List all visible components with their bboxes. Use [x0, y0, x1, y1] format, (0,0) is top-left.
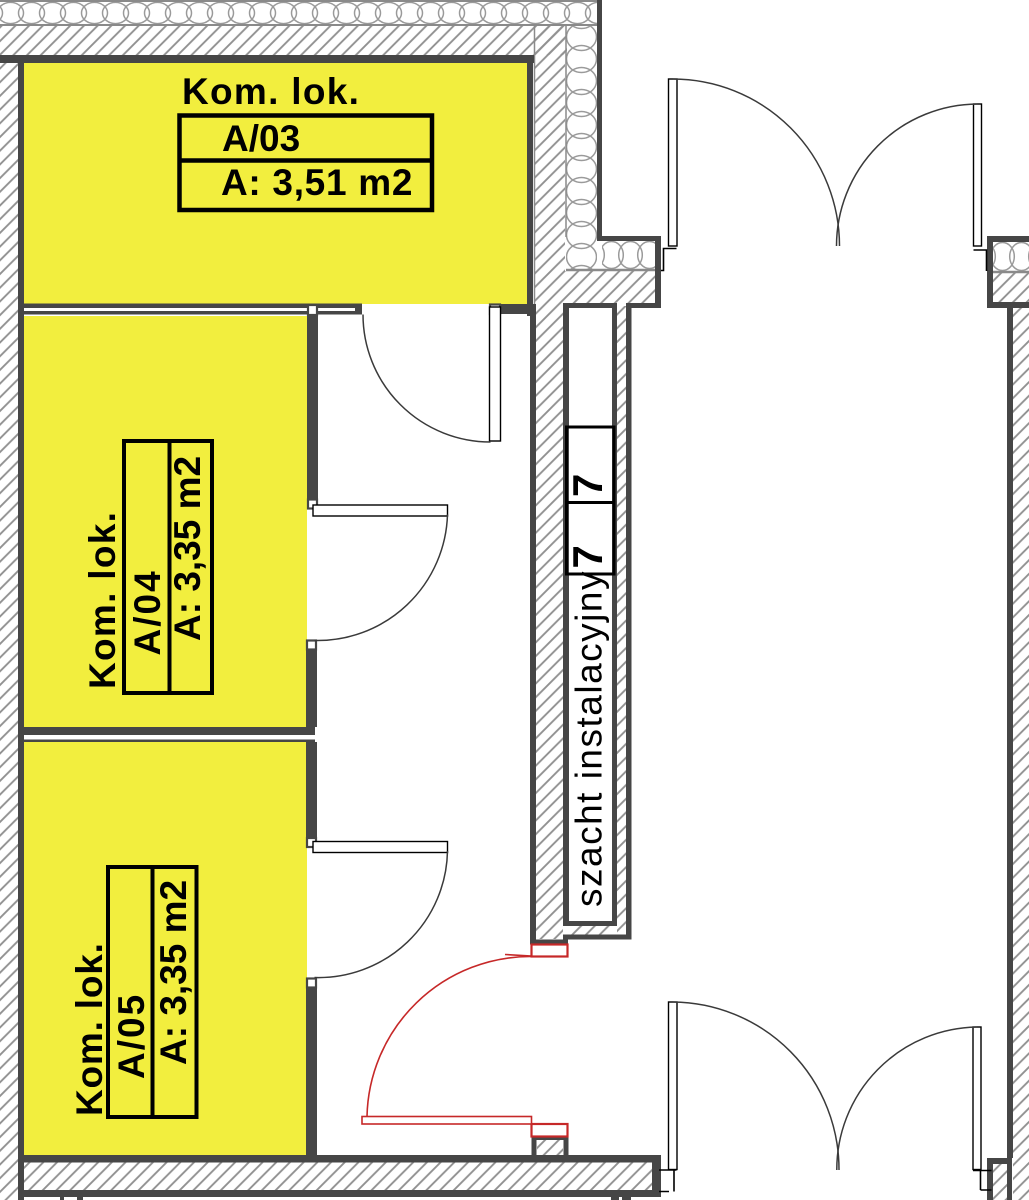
svg-text:A: 3,35 m2: A: 3,35 m2	[153, 880, 194, 1065]
svg-text:A/05: A/05	[111, 993, 152, 1079]
svg-text:7: 7	[564, 474, 611, 497]
svg-text:A/03: A/03	[222, 118, 300, 159]
svg-text:7: 7	[564, 545, 611, 568]
svg-text:A/04: A/04	[127, 569, 168, 655]
svg-text:Kom. lok.: Kom. lok.	[82, 511, 123, 689]
svg-text:szacht instalacyjny: szacht instalacyjny	[569, 570, 610, 907]
svg-text:A: 3,51 m2: A: 3,51 m2	[221, 162, 413, 203]
svg-text:A: 3,35 m2: A: 3,35 m2	[167, 456, 208, 641]
svg-text:Kom. lok.: Kom. lok.	[69, 942, 110, 1116]
svg-text:Kom. lok.: Kom. lok.	[182, 71, 360, 112]
